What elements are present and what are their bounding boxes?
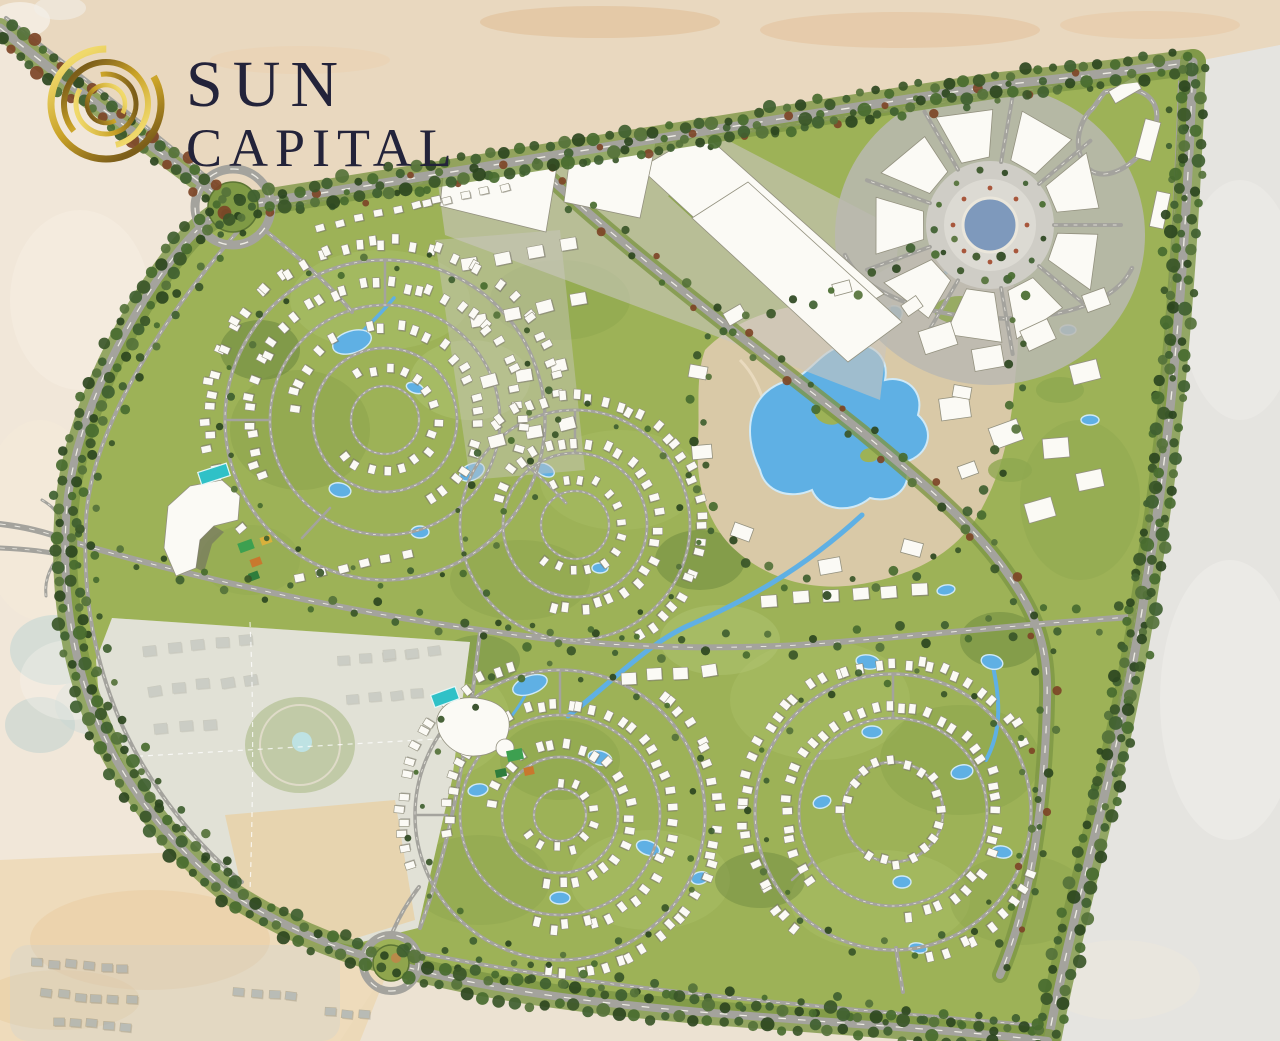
logo-word-sun: SUN — [186, 48, 348, 121]
plaza-fountain-pool — [963, 198, 1017, 252]
logo-word-capital: CAPITAL — [186, 118, 459, 178]
existing-neighborhood-southwest — [10, 945, 371, 1041]
masterplan-map[interactable]: SUN CAPITAL — [0, 0, 1280, 1041]
